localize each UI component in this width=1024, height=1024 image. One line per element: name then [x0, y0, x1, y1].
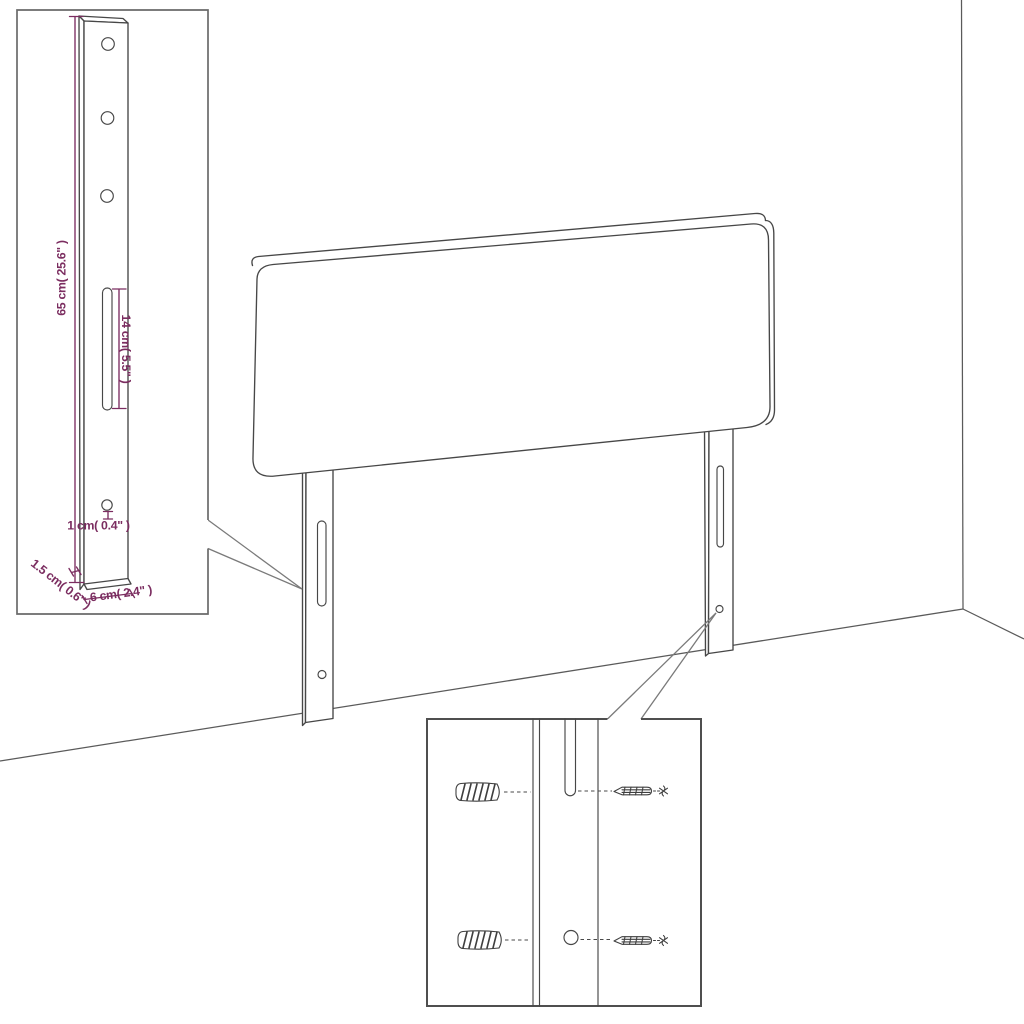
floor-line-right	[963, 609, 1024, 639]
screw-detail-callout-line-left	[608, 613, 717, 719]
screw-detail-inset	[427, 719, 701, 1006]
headboard-panel	[252, 213, 775, 476]
left-leg-front-face	[306, 458, 334, 723]
screw-detail-callout-line-right	[641, 613, 716, 719]
dim-label-slot-length: 14 cm( 5.5" )	[119, 315, 133, 384]
dim-label-hole-size: 1 cm( 0.4" )	[67, 519, 130, 533]
left-leg	[303, 458, 334, 726]
callout-lines	[208, 520, 716, 719]
leg-detail-inset: 65 cm( 25.6" ) 14 cm( 5.5" ) 1 cm( 0.4" …	[17, 10, 208, 614]
leg-detail-drawing	[79, 16, 131, 590]
leg-detail-side-face	[79, 16, 84, 590]
diagram-canvas: 65 cm( 25.6" ) 14 cm( 5.5" ) 1 cm( 0.4" …	[0, 0, 1024, 1024]
screw-detail-inset-background	[427, 719, 701, 1006]
dim-label-leg-height: 65 cm( 25.6" )	[55, 240, 69, 316]
wall-corner-line	[962, 0, 964, 609]
headboard-front-face	[253, 224, 770, 476]
